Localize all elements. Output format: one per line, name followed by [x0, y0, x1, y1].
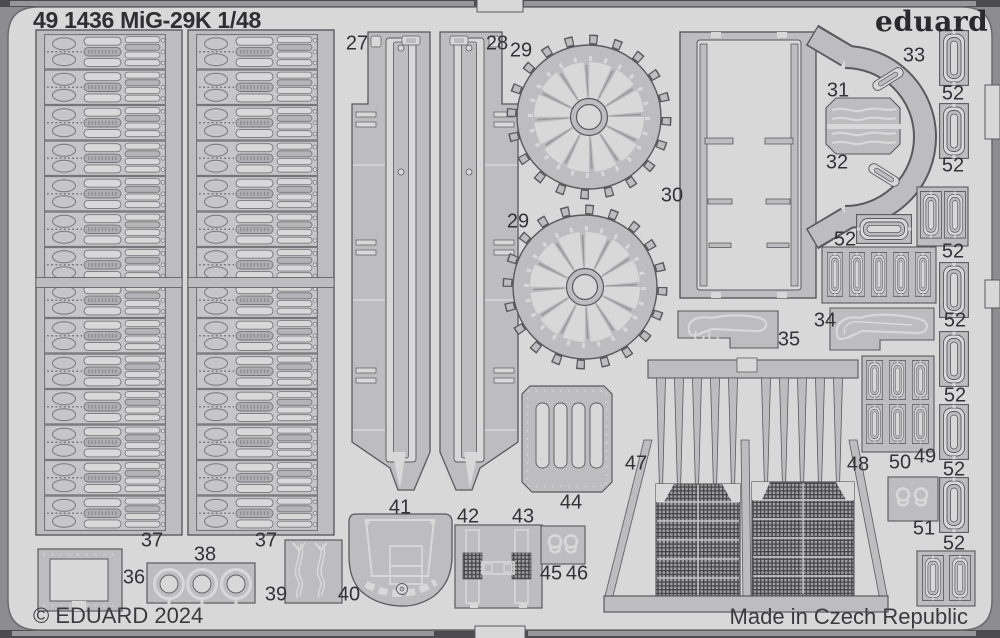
part-44-slotted-panel — [522, 386, 612, 492]
part-31-32-plate — [826, 98, 901, 154]
part-label-52: 52 — [943, 533, 965, 556]
part-label-48: 48 — [847, 454, 869, 477]
part-label-39: 39 — [265, 584, 287, 607]
part-label-41: 41 — [389, 497, 411, 520]
sheet-tab-right-2 — [985, 280, 1000, 308]
made-in-text: Made in Czech Republic — [730, 604, 968, 630]
part-label-52: 52 — [942, 241, 964, 264]
brand-logo: eduard — [875, 5, 988, 38]
sheet-tab-top — [477, 0, 523, 12]
part-30-canopy-frame — [680, 32, 816, 298]
part-label-43: 43 — [512, 506, 534, 529]
sheet-title: 49 1436 MiG-29K 1/48 — [33, 7, 261, 34]
part-36-frame — [38, 549, 122, 611]
part-49-50-panel — [862, 356, 934, 452]
part-label-29: 29 — [510, 40, 532, 63]
part-label-44: 44 — [560, 492, 582, 515]
part-label-52: 52 — [944, 310, 966, 333]
part-label-52: 52 — [943, 459, 965, 482]
part-label-29: 29 — [507, 211, 529, 234]
part-37-panel-left — [36, 30, 182, 535]
part-label-28: 28 — [486, 33, 508, 56]
part-label-35: 35 — [778, 329, 800, 352]
part-38-rings — [147, 563, 255, 606]
part-label-49: 49 — [914, 446, 936, 469]
part-39-40-tube-plate — [285, 540, 342, 603]
copyright-text: © EDUARD 2024 — [33, 603, 203, 629]
part-label-40: 40 — [338, 584, 360, 607]
part-label-52: 52 — [942, 83, 964, 106]
part-label-32: 32 — [826, 152, 848, 175]
photo-etch-fret-image: 49 1436 MiG-29K 1/48 eduard © EDUARD 202… — [0, 0, 1000, 638]
part-label-52: 52 — [942, 155, 964, 178]
part-label-38: 38 — [194, 544, 216, 567]
part-label-37: 37 — [141, 530, 163, 553]
part-label-31: 31 — [827, 80, 849, 103]
part-label-52: 52 — [944, 385, 966, 408]
part-51-hooks — [888, 477, 938, 521]
part-label-30: 30 — [661, 185, 683, 208]
part-label-52: 52 — [834, 229, 856, 252]
part-label-34: 34 — [814, 310, 836, 333]
part-label-33: 33 — [903, 45, 925, 68]
part-label-45: 45 — [540, 563, 562, 586]
part-label-50: 50 — [889, 452, 911, 475]
part-42-43-plate — [455, 525, 542, 608]
part-label-46: 46 — [566, 563, 588, 586]
part-label-42: 42 — [457, 506, 479, 529]
part-37-panel-right — [188, 30, 334, 535]
part-45-46-hooks — [541, 526, 585, 564]
part-label-37: 37 — [255, 530, 277, 553]
sheet-tab-bottom — [475, 626, 525, 638]
part-label-27: 27 — [346, 33, 368, 56]
part-label-47: 47 — [625, 453, 647, 476]
sheet-tab-right-1 — [985, 85, 1000, 139]
part-label-36: 36 — [123, 567, 145, 590]
part-41-seat-pan — [349, 514, 452, 606]
part-label-51: 51 — [913, 518, 935, 541]
